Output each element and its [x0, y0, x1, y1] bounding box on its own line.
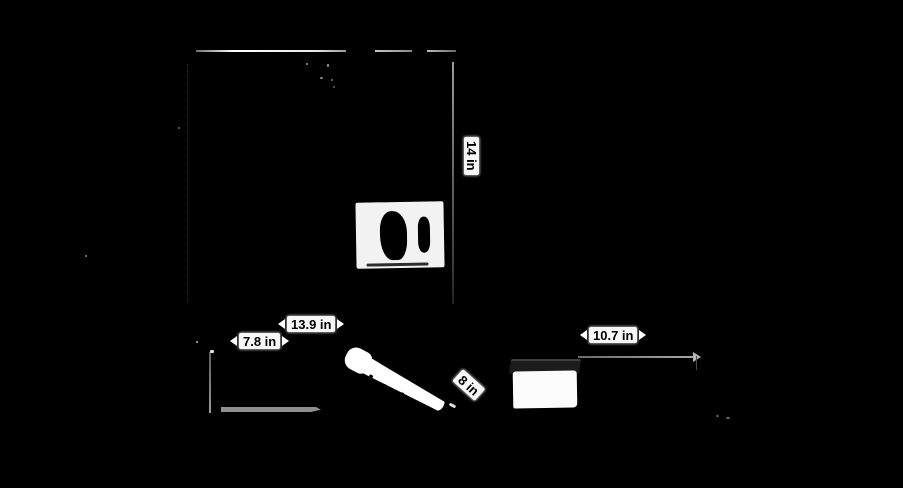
noise-speck	[333, 86, 335, 88]
dimension-value: 14 in	[464, 137, 479, 175]
front-left-edge-tip	[210, 350, 214, 353]
dimension-arrow-right-icon	[282, 336, 289, 346]
label-shadow	[366, 263, 428, 267]
dimension-label-depth: 7.8 in	[230, 333, 289, 349]
dimension-label-accessory-width: 10.7 in	[580, 327, 646, 343]
accessory-dimension-line	[578, 356, 695, 358]
product-dimension-image: 14 in 13.9 in 7.8 in 8 in 10.7 in	[0, 0, 903, 488]
noise-speck	[331, 79, 333, 81]
dimension-arrow-right-icon	[639, 330, 646, 340]
dimension-value: 10.7 in	[589, 327, 637, 343]
noise-speck	[178, 127, 180, 129]
dimension-extension-line	[696, 356, 697, 370]
sleeve-left-edge	[187, 64, 188, 302]
front-bottom-edge	[221, 407, 321, 412]
sleeve-top-edge-segment	[196, 50, 346, 52]
brand-label-patch	[355, 201, 444, 269]
noise-speck	[716, 415, 719, 417]
stylus-pen	[338, 344, 451, 423]
noise-speck	[306, 63, 308, 65]
stylus-body	[353, 352, 448, 414]
noise-speck	[196, 341, 198, 343]
dimension-label-pen-length: 8 in	[452, 369, 485, 401]
noise-speck	[85, 255, 87, 257]
noise-speck	[320, 77, 323, 79]
dimension-arrow-left-icon	[278, 319, 285, 329]
brand-logo-shape	[418, 216, 431, 252]
dimension-arrow-left-icon	[580, 330, 587, 340]
sleeve-right-edge-dimension-line	[452, 62, 454, 304]
dimension-arrow-left-icon	[230, 336, 237, 346]
sleeve-top-edge-segment	[375, 50, 412, 52]
sleeve-top-edge-segment	[427, 50, 456, 52]
brand-logo-shape	[380, 211, 408, 260]
pen-clip-mark	[400, 392, 405, 397]
front-left-edge	[209, 352, 211, 413]
dimension-value: 7.8 in	[239, 333, 280, 349]
dimension-value: 13.9 in	[287, 316, 335, 332]
dimension-label-height: 14 in	[464, 137, 479, 175]
noise-speck	[327, 64, 329, 67]
dimension-arrow-right-icon	[337, 319, 344, 329]
pen-tip-highlight	[449, 403, 457, 409]
accessory-box-body	[513, 370, 578, 408]
dimension-value: 8 in	[452, 369, 485, 401]
dimension-label-width: 13.9 in	[278, 316, 344, 332]
dimension-arrow-right-icon	[693, 352, 701, 362]
noise-speck	[726, 417, 730, 419]
